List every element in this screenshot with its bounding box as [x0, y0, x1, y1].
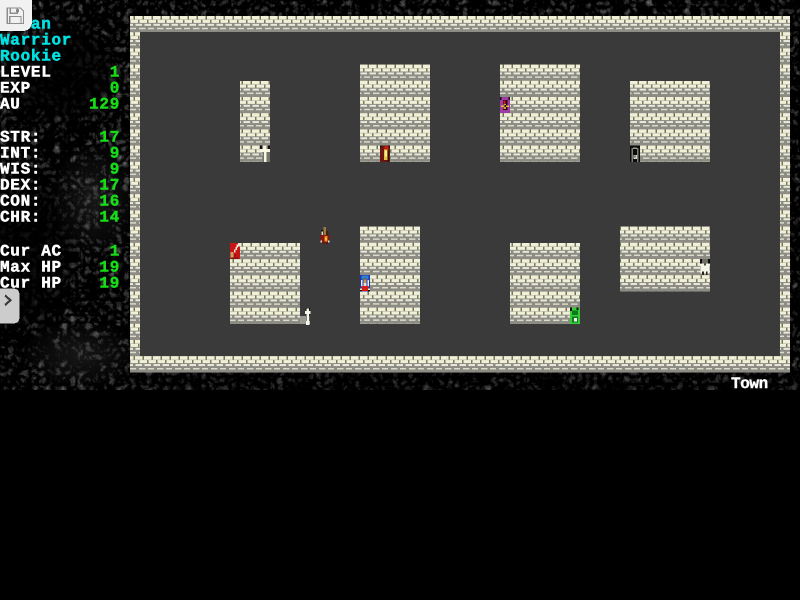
svg-text:Town: Town — [731, 375, 768, 393]
svg-text:129: 129 — [89, 96, 120, 114]
svg-text:CHR:: CHR: — [0, 209, 41, 227]
svg-text:19: 19 — [99, 275, 120, 293]
svg-text:14: 14 — [99, 209, 120, 227]
svg-text:AU: AU — [0, 96, 21, 114]
